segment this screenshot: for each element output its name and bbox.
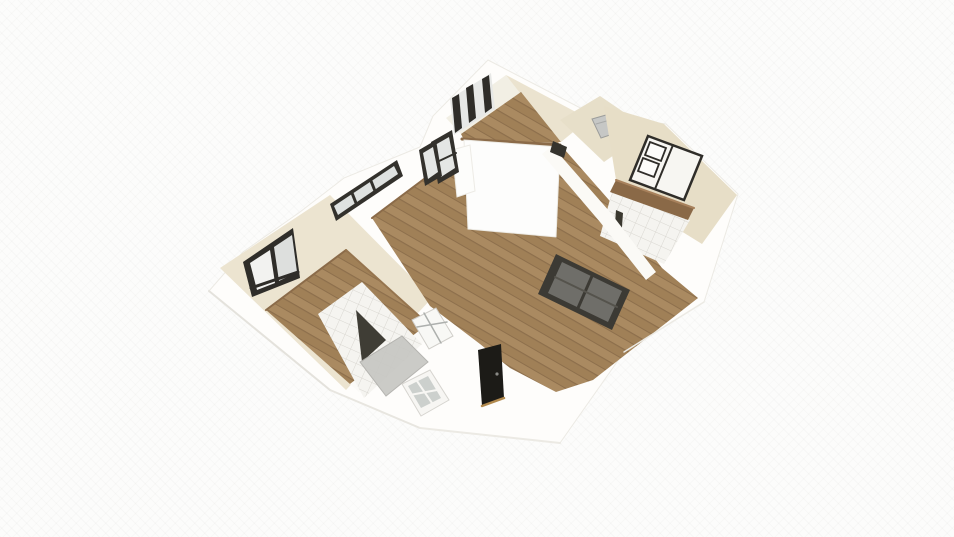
entry-door-black[interactable] xyxy=(478,344,504,406)
entry-door-knob xyxy=(495,372,498,375)
floorplan-shapes xyxy=(209,60,738,443)
floorplan-canvas[interactable] xyxy=(0,0,954,537)
render-viewport[interactable] xyxy=(0,0,954,537)
